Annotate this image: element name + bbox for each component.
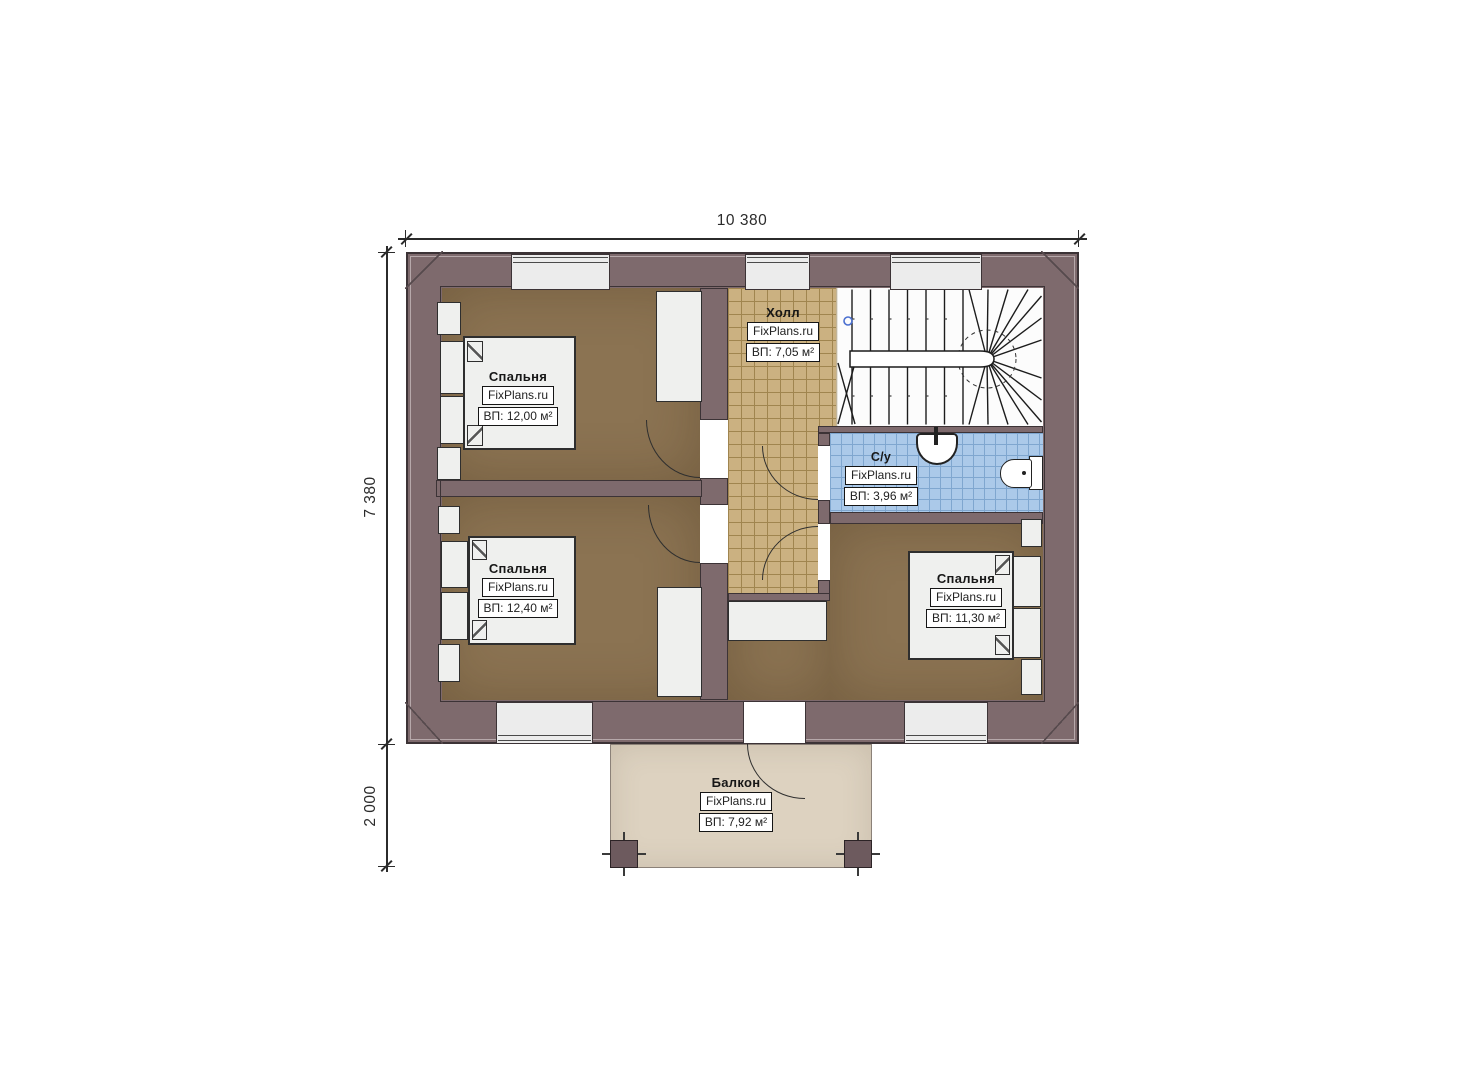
dimension-line-top (398, 238, 1087, 240)
nightstand (438, 506, 460, 534)
staircase (836, 288, 1043, 426)
pillow (467, 341, 483, 362)
sink-tap (934, 427, 938, 445)
pillow (472, 620, 487, 640)
door-opening-balcony (743, 702, 806, 743)
wardrobe (656, 291, 702, 402)
closet (728, 601, 827, 641)
nightstand (1021, 519, 1042, 547)
window (496, 702, 593, 744)
nightstand (437, 302, 461, 335)
room-label-bedroom-tl: Спальня FixPlans.ru ВП: 12,00 м² (460, 369, 576, 426)
room-label-hall: Холл FixPlans.ru ВП: 7,05 м² (733, 305, 833, 362)
room-area: ВП: 7,92 м² (699, 813, 773, 832)
room-name: Спальня (489, 561, 547, 576)
room-name: Спальня (489, 369, 547, 384)
room-name: Холл (766, 305, 800, 320)
room-label-bedroom-bl: Спальня FixPlans.ru ВП: 12,40 м² (460, 561, 576, 618)
window (745, 254, 810, 290)
window (904, 702, 988, 744)
dimension-balcony: 2 000 (362, 761, 380, 851)
room-area: ВП: 7,05 м² (746, 343, 820, 362)
balcony-post (844, 840, 872, 868)
room-brand: FixPlans.ru (700, 792, 772, 811)
toilet-bowl (1000, 459, 1032, 488)
door-opening-bedroom-br (818, 524, 830, 580)
room-brand: FixPlans.ru (845, 466, 917, 485)
door-opening-bathroom (818, 446, 830, 500)
window (511, 254, 610, 290)
room-area: ВП: 3,96 м² (844, 487, 918, 506)
door-opening-bedroom-tl (700, 420, 728, 478)
balcony-post (610, 840, 638, 868)
room-label-bathroom: С/у FixPlans.ru ВП: 3,96 м² (833, 450, 929, 506)
room-brand: FixPlans.ru (747, 322, 819, 341)
floor-plan: Спальня FixPlans.ru ВП: 12,00 м² Спальня… (0, 0, 1473, 1080)
room-area: ВП: 12,00 м² (478, 407, 559, 426)
dimension-height: 7 380 (362, 452, 380, 542)
dimension-line-balcony (386, 744, 388, 872)
room-name: Балкон (712, 775, 761, 790)
window (890, 254, 982, 290)
room-brand: FixPlans.ru (930, 588, 1002, 607)
dimension-line-left (386, 246, 388, 750)
room-name: С/у (871, 450, 891, 464)
pillow (467, 425, 483, 446)
pillow (995, 635, 1010, 655)
pillow (472, 540, 487, 560)
room-name: Спальня (937, 571, 995, 586)
room-brand: FixPlans.ru (482, 386, 554, 405)
room-brand: FixPlans.ru (482, 578, 554, 597)
room-label-balcony: Балкон FixPlans.ru ВП: 7,92 м² (690, 775, 782, 832)
nightstand (438, 644, 460, 682)
room-area: ВП: 12,40 м² (478, 599, 559, 618)
wardrobe (657, 587, 702, 697)
nightstand (437, 447, 461, 480)
dimension-width: 10 380 (672, 212, 812, 230)
nightstand (1021, 659, 1042, 695)
door-opening-bedroom-bl (700, 505, 728, 563)
toilet-flush-dot (1022, 471, 1026, 475)
room-label-bedroom-br: Спальня FixPlans.ru ВП: 11,30 м² (908, 571, 1024, 628)
room-area: ВП: 11,30 м² (926, 609, 1006, 628)
